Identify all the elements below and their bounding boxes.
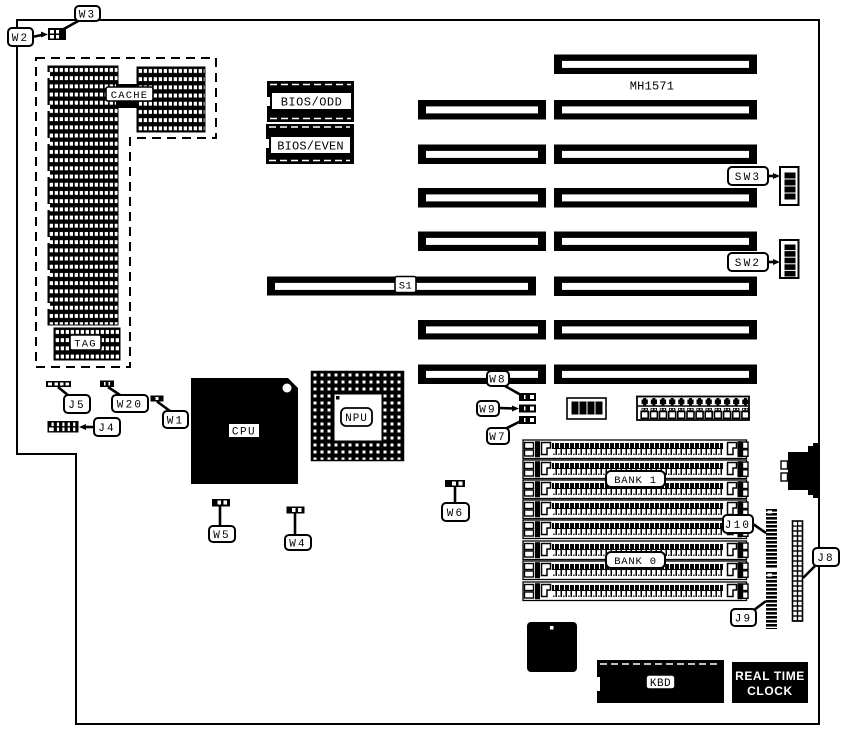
svg-text:W5: W5 — [213, 530, 231, 542]
svg-text:REAL TIME: REAL TIME — [735, 669, 805, 683]
svg-text:BIOS/EVEN: BIOS/EVEN — [277, 140, 344, 154]
svg-text:CACHE: CACHE — [111, 90, 149, 102]
svg-text:W20: W20 — [117, 399, 143, 411]
svg-text:W6: W6 — [447, 508, 465, 520]
svg-text:W4: W4 — [289, 538, 307, 550]
svg-text:J10: J10 — [725, 520, 751, 532]
svg-text:CLOCK: CLOCK — [747, 684, 793, 698]
svg-text:BANK 1: BANK 1 — [614, 475, 657, 487]
svg-text:J9: J9 — [735, 613, 753, 625]
svg-text:BIOS/ODD: BIOS/ODD — [281, 96, 343, 110]
svg-text:W8: W8 — [489, 374, 507, 386]
svg-text:NPU: NPU — [345, 413, 368, 425]
svg-text:J4: J4 — [98, 423, 116, 435]
svg-text:J8: J8 — [817, 553, 835, 565]
svg-text:SW3: SW3 — [735, 172, 761, 184]
svg-text:MH1571: MH1571 — [630, 80, 674, 94]
svg-text:CPU: CPU — [232, 427, 256, 439]
svg-text:W9: W9 — [479, 404, 497, 416]
svg-text:W2: W2 — [12, 33, 30, 45]
svg-text:S1: S1 — [399, 280, 413, 292]
svg-text:SW2: SW2 — [735, 258, 761, 270]
svg-text:TAG: TAG — [74, 338, 97, 350]
svg-text:J5: J5 — [68, 400, 86, 412]
svg-text:KBD: KBD — [650, 678, 671, 690]
svg-text:W3: W3 — [79, 9, 97, 21]
svg-text:BANK 0: BANK 0 — [614, 556, 657, 568]
svg-text:W7: W7 — [489, 432, 507, 444]
svg-text:W1: W1 — [167, 415, 185, 427]
